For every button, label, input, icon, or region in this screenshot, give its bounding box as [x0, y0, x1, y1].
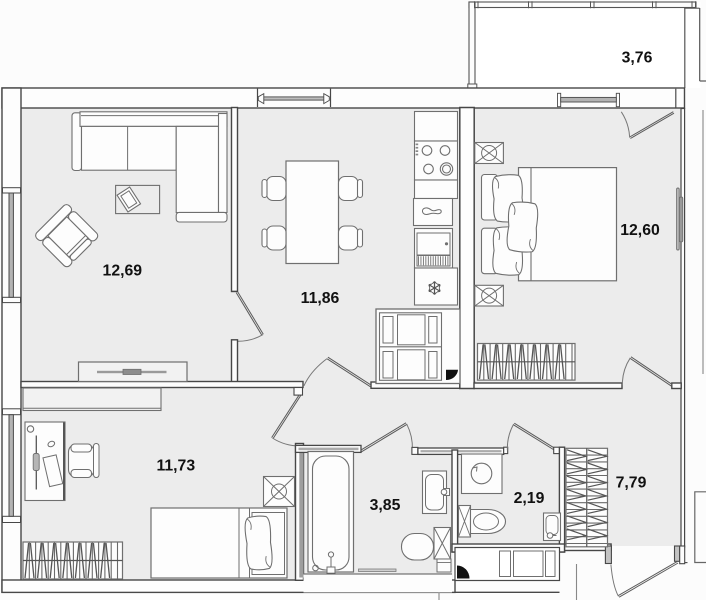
- svg-text:11,73: 11,73: [156, 458, 195, 475]
- svg-text:12,69: 12,69: [103, 263, 143, 280]
- svg-text:7,79: 7,79: [616, 475, 647, 492]
- svg-text:12,60: 12,60: [620, 222, 660, 239]
- svg-text:2,19: 2,19: [514, 490, 545, 507]
- svg-text:11,86: 11,86: [301, 290, 340, 307]
- svg-text:3,76: 3,76: [622, 50, 653, 67]
- svg-text:3,85: 3,85: [370, 497, 401, 514]
